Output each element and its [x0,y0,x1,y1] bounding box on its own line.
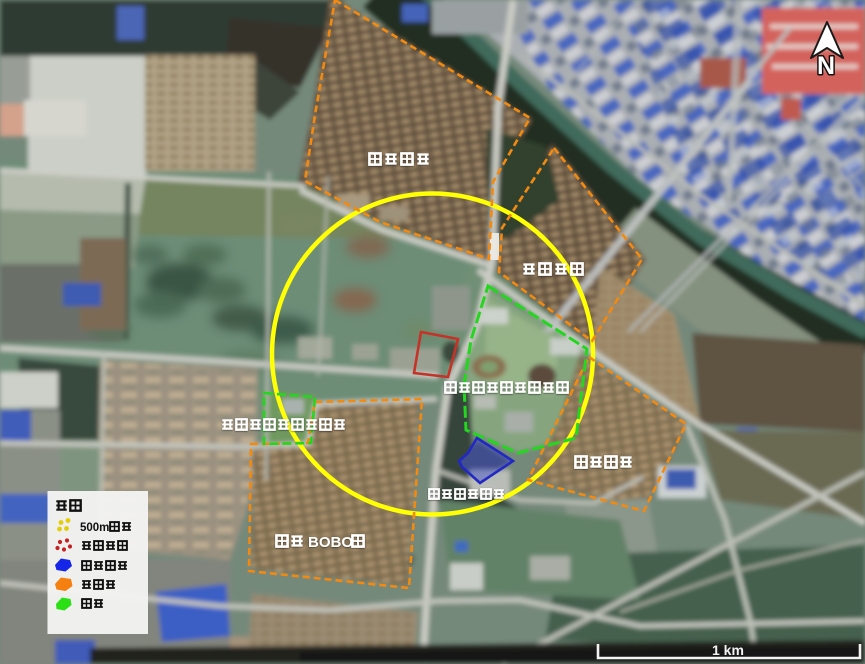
svg-text:500m: 500m [80,522,109,534]
svg-text:BOBO: BOBO [308,534,353,551]
svg-text:1 km: 1 km [712,642,744,658]
svg-text:N: N [817,52,835,80]
